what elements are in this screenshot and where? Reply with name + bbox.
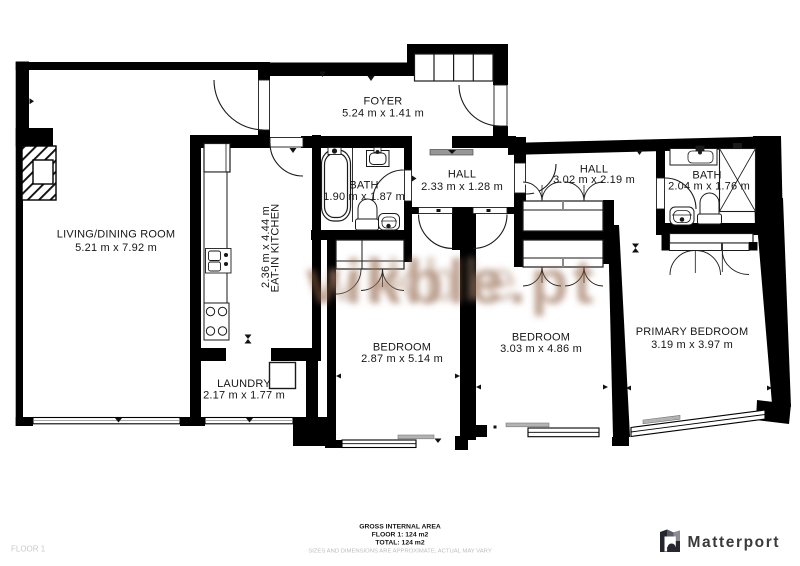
svg-text:2.17 m x 1.77 m: 2.17 m x 1.77 m	[203, 390, 285, 402]
svg-text:vikble: vikble	[327, 247, 521, 314]
svg-text:SIZES AND DIMENSIONS ARE APPRO: SIZES AND DIMENSIONS ARE APPROXIMATE, AC…	[308, 549, 492, 555]
svg-text:FLOOR 1: 124 m2: FLOOR 1: 124 m2	[372, 532, 429, 539]
svg-text:2.87 m x 5.14 m: 2.87 m x 5.14 m	[361, 353, 443, 365]
svg-text:GROSS INTERNAL AREA: GROSS INTERNAL AREA	[359, 524, 441, 531]
svg-text:LAUNDRY: LAUNDRY	[217, 378, 271, 390]
svg-text:BEDROOM: BEDROOM	[373, 342, 431, 354]
svg-text:TOTAL: 124 m2: TOTAL: 124 m2	[375, 540, 424, 547]
svg-text:1.90 m x 1.87 m: 1.90 m x 1.87 m	[323, 191, 405, 203]
svg-text:2.33 m x 1.28 m: 2.33 m x 1.28 m	[421, 181, 503, 193]
svg-text:FLOOR 1: FLOOR 1	[11, 545, 46, 554]
svg-text:BEDROOM: BEDROOM	[512, 332, 570, 344]
svg-text:Matterport: Matterport	[688, 534, 781, 551]
svg-text:5.24 m x 1.41 m: 5.24 m x 1.41 m	[342, 108, 424, 120]
svg-text:5.21 m x 7.92 m: 5.21 m x 7.92 m	[75, 242, 157, 254]
svg-text:BATH: BATH	[349, 180, 378, 192]
svg-text:3.19 m x 3.97 m: 3.19 m x 3.97 m	[651, 339, 733, 351]
svg-text:2.36 m x 4.44 m: 2.36 m x 4.44 m	[260, 206, 272, 288]
svg-text:LIVING/DINING ROOM: LIVING/DINING ROOM	[57, 229, 176, 241]
svg-text:3.03 m x 4.86 m: 3.03 m x 4.86 m	[500, 343, 582, 355]
svg-text:FOYER: FOYER	[364, 96, 403, 108]
svg-text:PRIMARY BEDROOM: PRIMARY BEDROOM	[636, 326, 749, 338]
svg-text:2.04 m x 1.76 m: 2.04 m x 1.76 m	[668, 181, 750, 193]
svg-text:HALL: HALL	[448, 169, 476, 181]
svg-text:3.02 m x 2.19 m: 3.02 m x 2.19 m	[553, 174, 635, 186]
